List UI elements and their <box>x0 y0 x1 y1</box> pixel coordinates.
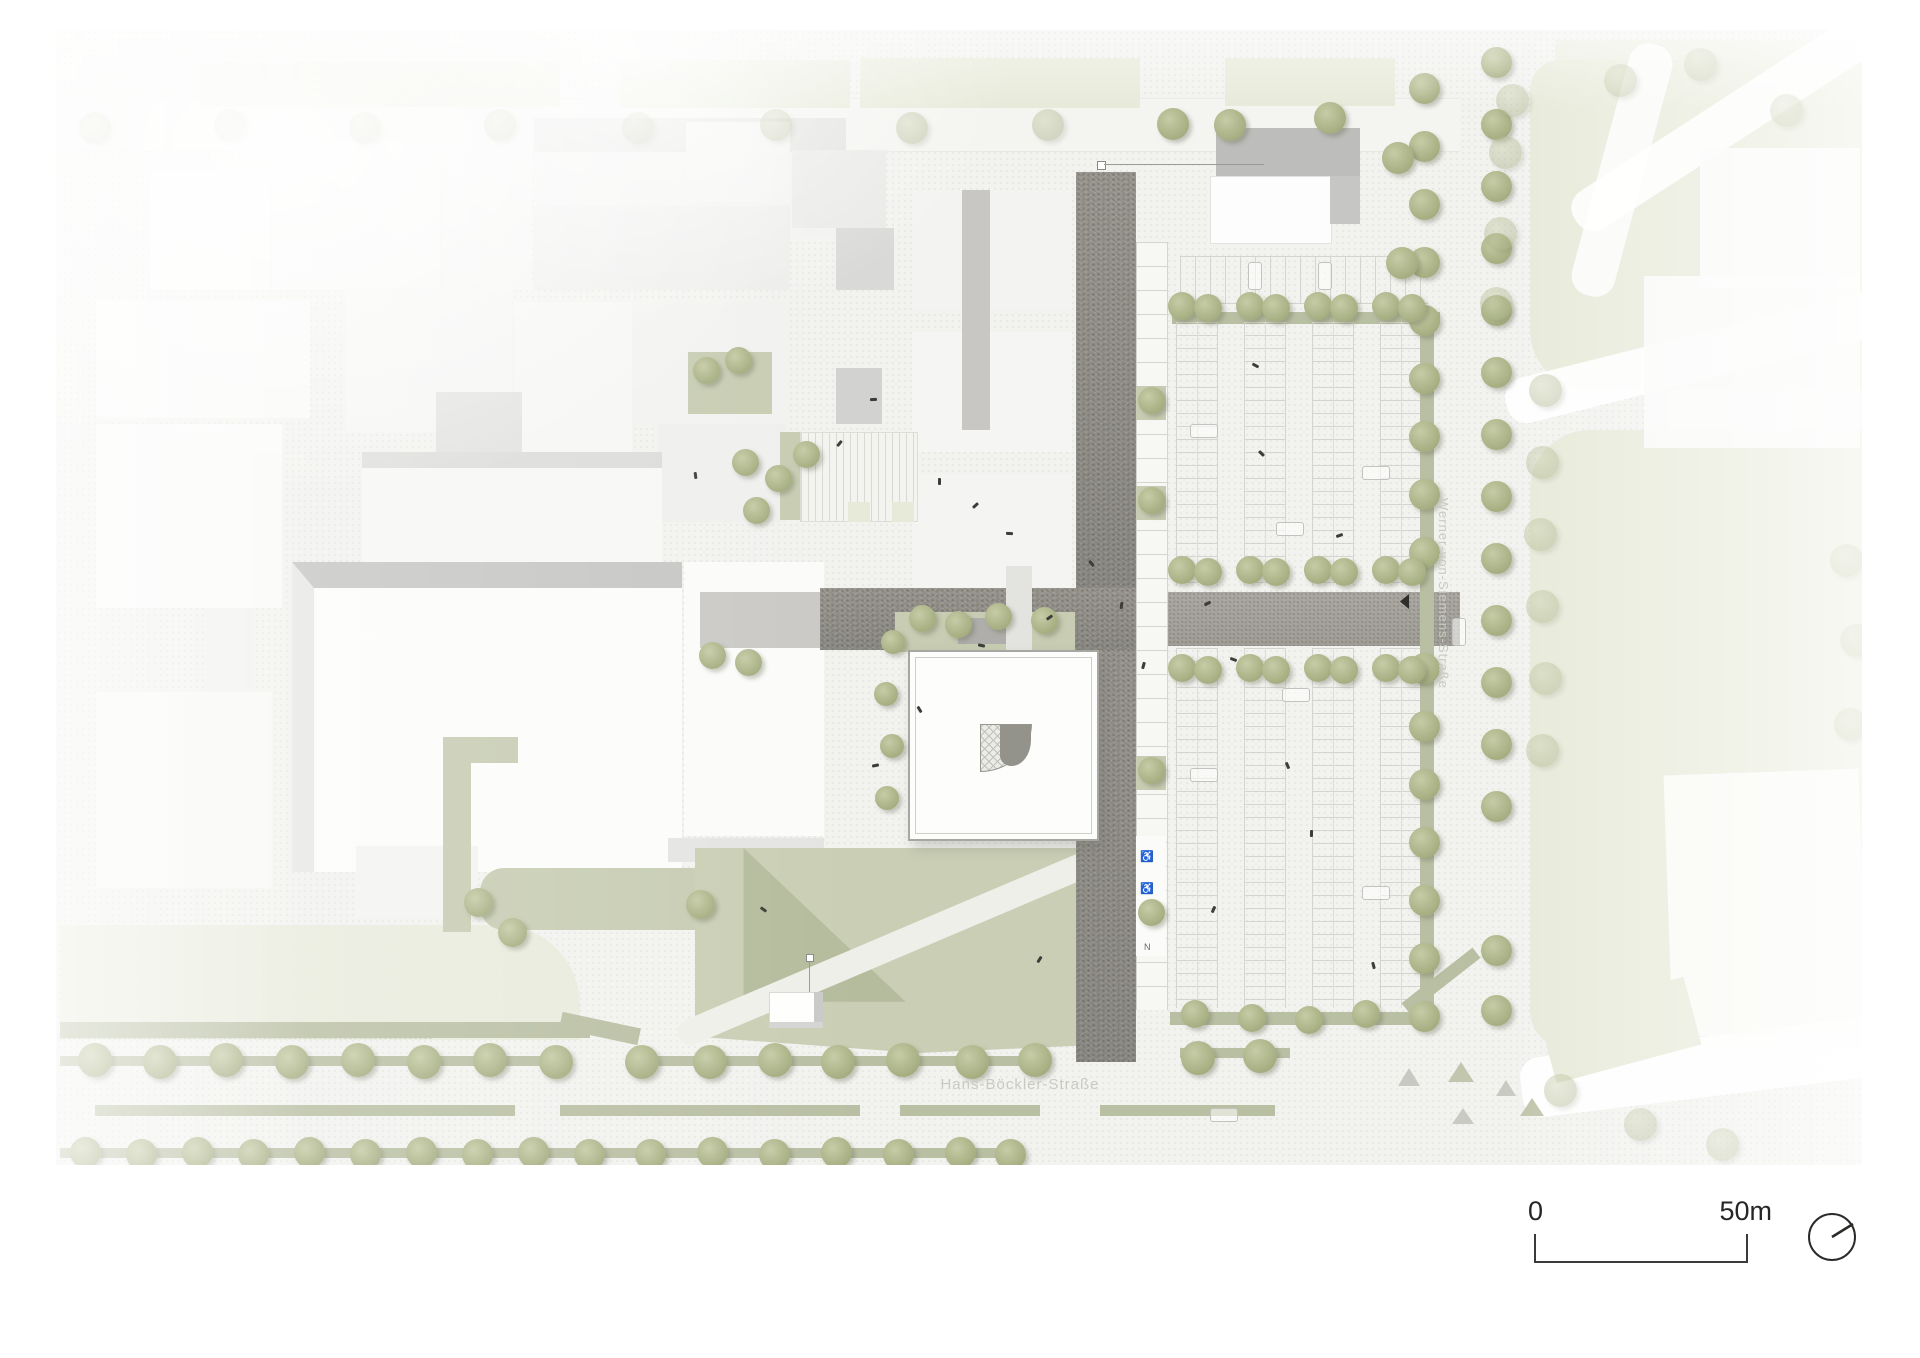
tree-icon <box>1526 734 1559 767</box>
tree-icon <box>697 1137 728 1166</box>
tree-icon <box>464 888 493 917</box>
tree-icon <box>143 1045 177 1079</box>
tree-icon <box>1352 1000 1380 1028</box>
tree-icon <box>1524 518 1557 551</box>
person-icon <box>836 440 843 447</box>
tree-icon <box>70 1137 101 1166</box>
tree-icon <box>743 497 770 524</box>
tree-icon <box>955 1045 989 1079</box>
tree-icon <box>1214 109 1246 141</box>
north-arrow-icon <box>1806 1211 1858 1263</box>
tree-icon <box>78 1043 112 1077</box>
tree-icon <box>758 1043 792 1077</box>
tree-icon <box>1526 446 1559 479</box>
tree-icon <box>699 642 726 669</box>
tree-icon <box>238 1139 269 1166</box>
tree-icon <box>1481 729 1512 760</box>
tree-icon <box>539 1045 573 1079</box>
person-icon <box>1371 962 1376 970</box>
tree-icon <box>1194 656 1222 684</box>
tree-icon <box>1529 374 1562 407</box>
tree-icon <box>1314 102 1346 134</box>
tree-icon <box>1489 136 1522 169</box>
tree-icon <box>1398 558 1426 586</box>
tree-icon <box>1181 1000 1209 1028</box>
tree-icon <box>214 109 246 141</box>
plan-sheet: ♿ ♿ N N Hans-Böckler-Straße Werner-von-S… <box>56 30 1862 1165</box>
tree-icon <box>1243 1039 1277 1073</box>
tree-icon <box>1624 1108 1657 1141</box>
car-icon <box>1190 768 1218 782</box>
tree-icon <box>1032 109 1064 141</box>
tree-icon <box>1706 1128 1739 1161</box>
tree-icon <box>1372 292 1400 320</box>
tree-icon <box>693 357 720 384</box>
person-icon <box>916 706 922 714</box>
person-icon <box>1230 657 1238 662</box>
tree-icon <box>760 109 792 141</box>
car-icon <box>1318 262 1332 290</box>
tree-icon <box>1409 943 1440 974</box>
street-label-right: Werner-von-Siemens-Straße <box>1436 498 1451 728</box>
tree-icon <box>945 611 972 638</box>
tree-icon <box>1481 357 1512 388</box>
person-icon <box>1252 363 1260 369</box>
tree-icon <box>1194 558 1222 586</box>
tree-icon <box>341 1043 375 1077</box>
tree-icon <box>883 1139 914 1166</box>
tree-icon <box>1604 64 1637 97</box>
tree-icon <box>881 630 905 654</box>
tree-icon <box>1262 294 1290 322</box>
person-icon <box>870 398 877 401</box>
tree-icon <box>896 112 928 144</box>
car-icon <box>1248 262 1262 290</box>
tree-icon <box>1496 84 1529 117</box>
person-icon <box>938 478 941 485</box>
tree-icon <box>1409 827 1440 858</box>
tree-icon <box>821 1137 852 1166</box>
tree-icon <box>574 1139 605 1166</box>
tree-icon <box>1484 217 1517 250</box>
car-icon <box>1276 522 1304 536</box>
tree-icon <box>407 1045 441 1079</box>
tree-icon <box>498 918 527 947</box>
tree-icon <box>1481 995 1512 1026</box>
scale-bar <box>1534 1234 1748 1263</box>
tree-icon <box>1529 662 1562 695</box>
tree-icon <box>1398 656 1426 684</box>
tree-icon <box>622 112 654 144</box>
tree-icon <box>1481 667 1512 698</box>
vegetation-layer <box>56 30 1862 1165</box>
person-icon <box>972 502 979 509</box>
car-icon <box>1452 618 1466 646</box>
car-icon <box>1190 424 1218 438</box>
person-icon <box>1336 533 1344 538</box>
person-icon <box>1258 450 1265 457</box>
tree-icon <box>625 1045 659 1079</box>
tree-icon <box>1481 419 1512 450</box>
tree-icon <box>473 1043 507 1077</box>
tree-icon <box>1481 481 1512 512</box>
tree-icon <box>1181 1041 1215 1075</box>
tree-icon <box>1138 757 1165 784</box>
tree-icon <box>759 1139 790 1166</box>
tree-icon <box>1168 654 1196 682</box>
tree-icon <box>985 603 1012 630</box>
tree-icon <box>725 347 752 374</box>
street-label-bottom: Hans-Böckler-Straße <box>890 1076 1150 1093</box>
tree-icon <box>1409 363 1440 394</box>
person-icon <box>760 906 767 913</box>
car-icon <box>1210 1108 1238 1122</box>
person-icon <box>1120 602 1124 609</box>
tree-icon <box>886 1043 920 1077</box>
tree-icon <box>1138 487 1165 514</box>
tree-icon <box>209 1043 243 1077</box>
tree-icon <box>1304 654 1332 682</box>
tree-icon <box>1194 294 1222 322</box>
person-icon <box>1141 662 1146 670</box>
tree-icon <box>1840 624 1863 657</box>
tree-icon <box>1304 292 1332 320</box>
person-icon <box>872 763 879 767</box>
tree-icon <box>995 1139 1026 1166</box>
tree-icon <box>1330 294 1358 322</box>
tree-icon <box>1031 607 1058 634</box>
tree-icon <box>1238 1004 1266 1032</box>
tree-icon <box>1295 1006 1323 1034</box>
tree-icon <box>275 1045 309 1079</box>
tree-icon <box>1409 479 1440 510</box>
tree-icon <box>909 605 936 632</box>
tree-icon <box>1168 556 1196 584</box>
tree-icon <box>1684 48 1717 81</box>
tree-icon <box>1262 656 1290 684</box>
tree-icon <box>1409 1001 1440 1032</box>
tree-icon <box>875 786 899 810</box>
person-icon <box>1006 532 1013 535</box>
tree-icon <box>1018 1043 1052 1077</box>
scale-end-label: 50m <box>1688 1196 1772 1227</box>
tree-icon <box>1481 791 1512 822</box>
car-icon <box>1362 886 1390 900</box>
tree-icon <box>1304 556 1332 584</box>
tree-icon <box>1372 654 1400 682</box>
scale-zero-label: 0 <box>1528 1196 1543 1227</box>
tree-icon <box>1409 885 1440 916</box>
tree-icon <box>1236 556 1264 584</box>
tree-icon <box>1770 94 1803 127</box>
tree-icon <box>1409 711 1440 742</box>
tree-icon <box>126 1139 157 1166</box>
tree-icon <box>874 682 898 706</box>
person-icon <box>694 472 698 479</box>
tree-icon <box>1481 935 1512 966</box>
tree-icon <box>182 1137 213 1166</box>
tree-icon <box>1157 108 1189 140</box>
tree-icon <box>518 1137 549 1166</box>
tree-icon <box>1480 287 1513 320</box>
tree-icon <box>1544 1074 1577 1107</box>
tree-icon <box>79 112 111 144</box>
tree-icon <box>1481 543 1512 574</box>
tree-icon <box>1526 590 1559 623</box>
tree-icon <box>484 109 516 141</box>
tree-icon <box>635 1139 666 1166</box>
tree-icon <box>1481 171 1512 202</box>
tree-icon <box>294 1137 325 1166</box>
tree-icon <box>1382 142 1414 174</box>
tree-icon <box>350 1139 381 1166</box>
tree-icon <box>693 1045 727 1079</box>
person-icon <box>1088 560 1095 567</box>
tree-icon <box>880 734 904 758</box>
tree-icon <box>1138 899 1165 926</box>
person-icon <box>1285 762 1290 770</box>
tree-icon <box>793 441 820 468</box>
tree-icon <box>732 449 759 476</box>
tree-icon <box>1236 654 1264 682</box>
tree-icon <box>1386 247 1418 279</box>
tree-icon <box>1398 294 1426 322</box>
tree-icon <box>1330 656 1358 684</box>
tree-icon <box>1481 47 1512 78</box>
tree-icon <box>686 890 715 919</box>
tree-icon <box>821 1045 855 1079</box>
person-icon <box>1211 906 1217 914</box>
person-icon <box>1036 956 1042 964</box>
person-icon <box>1204 601 1212 607</box>
person-icon <box>1310 830 1313 837</box>
tree-icon <box>1409 73 1440 104</box>
tree-icon <box>765 465 792 492</box>
tree-icon <box>1409 421 1440 452</box>
car-icon <box>1282 688 1310 702</box>
tree-icon <box>1330 558 1358 586</box>
tree-icon <box>1409 769 1440 800</box>
tree-icon <box>1834 708 1863 741</box>
car-icon <box>1362 466 1390 480</box>
tree-icon <box>945 1137 976 1166</box>
tree-icon <box>1168 292 1196 320</box>
tree-icon <box>349 112 381 144</box>
tree-icon <box>1236 292 1264 320</box>
tree-icon <box>1138 387 1165 414</box>
tree-icon <box>1262 558 1290 586</box>
tree-icon <box>1481 605 1512 636</box>
tree-icon <box>1409 189 1440 220</box>
tree-icon <box>735 649 762 676</box>
tree-icon <box>1830 544 1863 577</box>
tree-icon <box>1372 556 1400 584</box>
tree-icon <box>406 1137 437 1166</box>
tree-icon <box>462 1139 493 1166</box>
person-icon <box>978 643 985 647</box>
site-plan-page: { "plan": { "type": "architectural-site-… <box>0 0 1920 1358</box>
